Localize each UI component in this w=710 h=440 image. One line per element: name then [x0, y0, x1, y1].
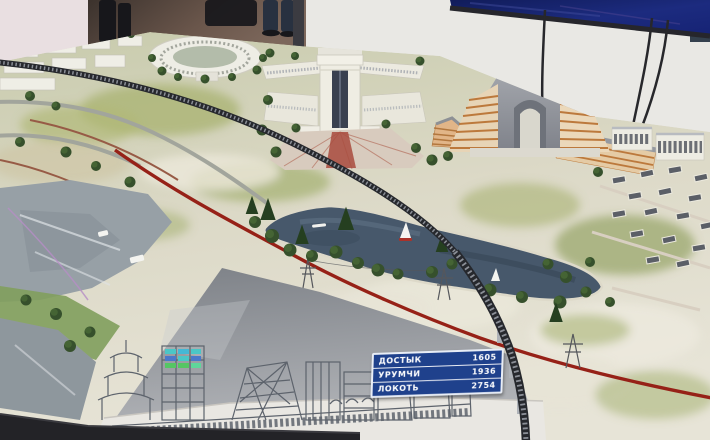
station-name: УРУМЧИ	[378, 367, 421, 382]
exhibition-photo: ДОСТЫК 1605 УРУМЧИ 1936 ЛОКОТЬ 2754	[0, 0, 710, 440]
station-name: ДОСТЫК	[378, 353, 422, 368]
central-tower	[317, 55, 363, 132]
station-name: ЛОКОТЬ	[377, 381, 419, 395]
wall-pillar	[293, 0, 304, 50]
station-distance: 2754	[471, 379, 496, 393]
station-distance: 1936	[472, 365, 497, 379]
central-complex	[262, 48, 426, 170]
distance-sign: ДОСТЫК 1605 УРУМЧИ 1936 ЛОКОТЬ 2754	[370, 348, 503, 398]
scale-model-scene	[0, 0, 710, 440]
station-distance: 1605	[472, 351, 497, 365]
colored-window-bands	[165, 349, 201, 368]
